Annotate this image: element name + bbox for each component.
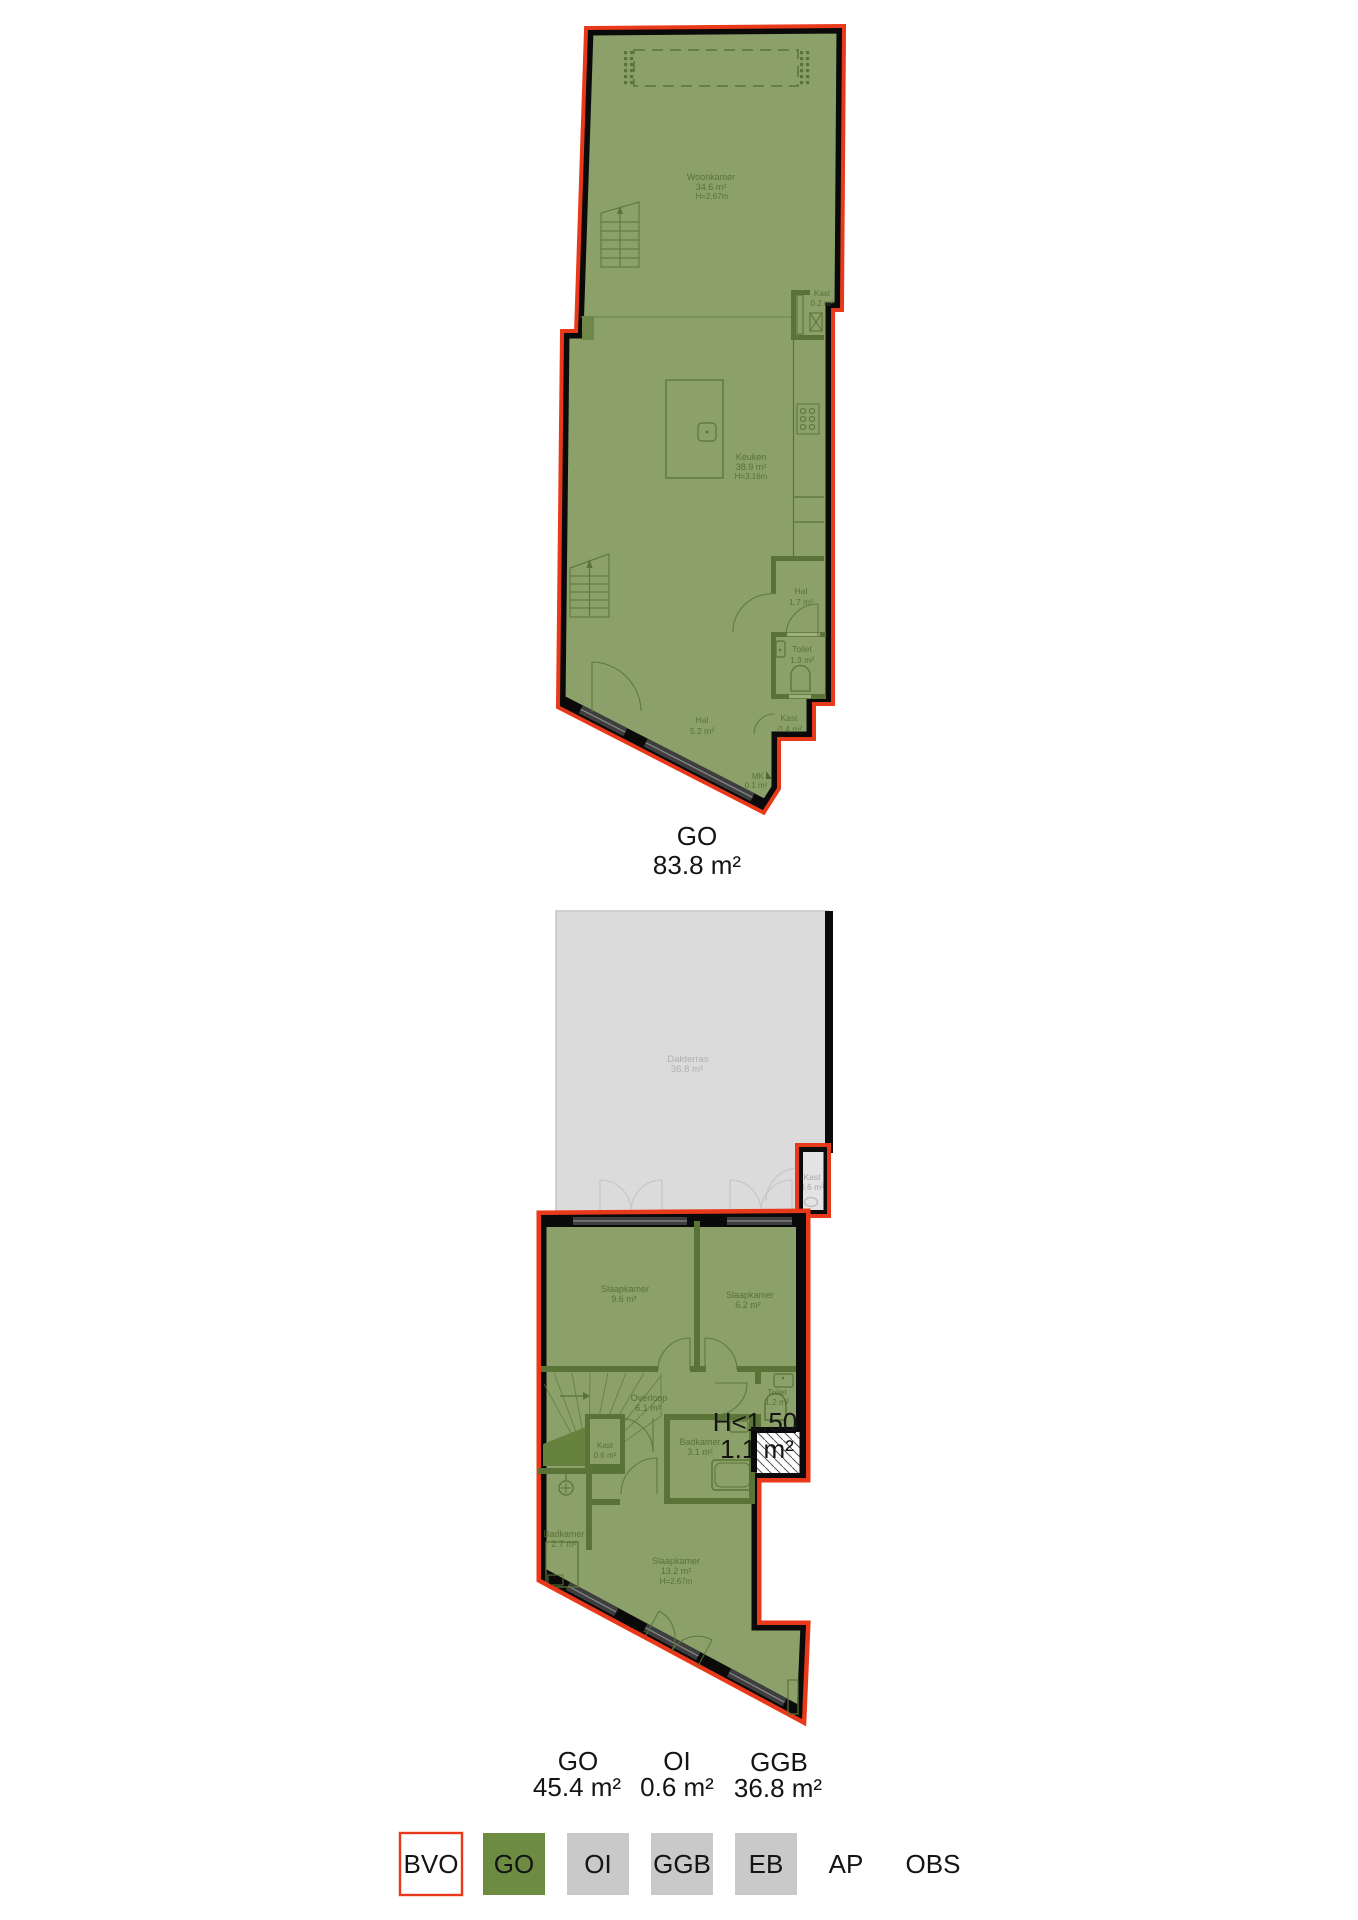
svg-text:GO: GO (494, 1849, 534, 1879)
svg-text:34.6 m²: 34.6 m² (696, 182, 727, 192)
svg-text:Kast: Kast (597, 1441, 614, 1450)
svg-text:5.2 m²: 5.2 m² (690, 726, 714, 736)
svg-text:Woonkamer: Woonkamer (687, 172, 735, 182)
svg-text:6.2 m²: 6.2 m² (735, 1300, 761, 1310)
svg-text:MK: MK (752, 772, 765, 781)
svg-text:36.8 m²: 36.8 m² (671, 1064, 703, 1075)
svg-text:36.8 m²: 36.8 m² (734, 1773, 822, 1803)
svg-text:6.1 m²: 6.1 m² (635, 1403, 661, 1413)
svg-text:0.6 m²: 0.6 m² (594, 1451, 617, 1460)
svg-text:AP: AP (829, 1849, 864, 1879)
svg-text:1.7 m²: 1.7 m² (789, 597, 813, 607)
svg-text:Overloop: Overloop (631, 1393, 668, 1403)
svg-text:1.1 m²: 1.1 m² (720, 1434, 794, 1464)
svg-text:BVO: BVO (404, 1849, 459, 1879)
svg-text:Slaapkamer: Slaapkamer (726, 1290, 774, 1300)
svg-text:GGB: GGB (653, 1849, 711, 1879)
svg-text:Slaapkamer: Slaapkamer (652, 1556, 700, 1566)
svg-text:0.2 m²: 0.2 m² (811, 299, 834, 308)
svg-text:Toilet: Toilet (792, 644, 812, 654)
svg-text:0.4 m²: 0.4 m² (778, 724, 802, 734)
svg-text:Hal: Hal (696, 715, 709, 725)
svg-text:Keuken: Keuken (736, 452, 767, 462)
svg-text:3.1 m²: 3.1 m² (687, 1447, 713, 1457)
svg-text:0.1 m²: 0.1 m² (745, 781, 768, 790)
svg-text:45.4 m²: 45.4 m² (533, 1772, 621, 1802)
svg-text:Hal: Hal (795, 586, 808, 596)
svg-text:1.2 m²: 1.2 m² (765, 1397, 789, 1407)
svg-text:0.6 m²: 0.6 m² (800, 1182, 824, 1192)
svg-text:2.7 m²: 2.7 m² (551, 1539, 577, 1549)
svg-text:Toilet: Toilet (767, 1387, 787, 1397)
svg-text:Kast: Kast (814, 289, 831, 298)
svg-text:EB: EB (749, 1849, 784, 1879)
svg-text:13.2 m²: 13.2 m² (661, 1566, 692, 1576)
svg-text:Kast: Kast (780, 713, 798, 723)
svg-text:Slaapkamer: Slaapkamer (601, 1284, 649, 1294)
svg-text:83.8 m²: 83.8 m² (653, 850, 741, 880)
svg-text:H<1.50: H<1.50 (713, 1407, 798, 1437)
svg-text:Badkamer: Badkamer (543, 1529, 584, 1539)
svg-text:38.9 m²: 38.9 m² (736, 462, 767, 472)
svg-text:H=3.16m: H=3.16m (735, 472, 768, 481)
svg-text:GO: GO (677, 821, 717, 851)
svg-text:H=2.67m: H=2.67m (660, 1577, 693, 1586)
svg-text:Badkamer: Badkamer (679, 1437, 720, 1447)
svg-text:OI: OI (584, 1849, 611, 1879)
svg-text:1.3 m²: 1.3 m² (790, 655, 814, 665)
svg-text:0.6 m²: 0.6 m² (640, 1772, 714, 1802)
svg-text:OBS: OBS (906, 1849, 961, 1879)
svg-text:Kast: Kast (803, 1172, 821, 1182)
svg-text:H=2.67m: H=2.67m (696, 192, 729, 201)
svg-text:9.6 m²: 9.6 m² (611, 1294, 637, 1304)
